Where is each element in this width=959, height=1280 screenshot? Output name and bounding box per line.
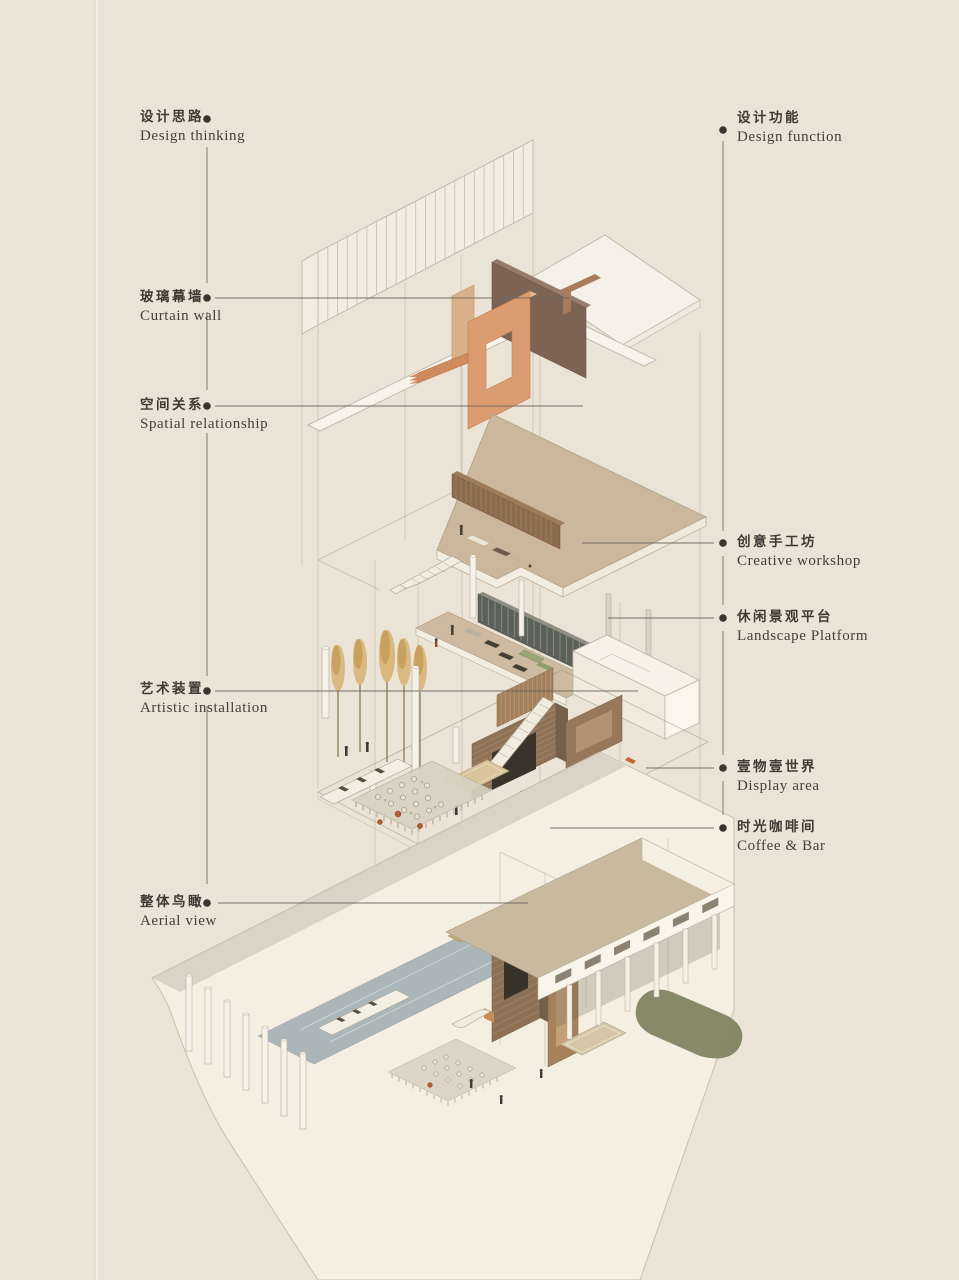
label-display-area-zh: 壹物壹世界 [737, 760, 820, 774]
label-landscape-platform-zh: 休闲景观平台 [737, 610, 868, 624]
label-design-function-zh: 设计功能 [737, 111, 842, 125]
label-aerial-view-zh: 整体鸟瞰 [140, 895, 217, 909]
orange-sculpture [409, 259, 601, 429]
exploded-axonometric-poster: 设计思路 Design thinking 玻璃幕墙 Curtain wall 空… [0, 0, 959, 1280]
label-creative-workshop-zh: 创意手工坊 [737, 535, 861, 549]
label-spatial-relationship: 空间关系 Spatial relationship [140, 398, 268, 432]
label-artistic-installation-zh: 艺术装置 [140, 682, 268, 696]
label-creative-workshop-en: Creative workshop [737, 554, 861, 569]
workshop-escalator [390, 556, 462, 594]
leader-dot [719, 824, 727, 832]
leader-dot [719, 539, 727, 547]
label-curtain-wall-en: Curtain wall [140, 309, 222, 324]
label-design-thinking-en: Design thinking [140, 129, 245, 144]
label-design-function: 设计功能 Design function [737, 111, 842, 145]
label-coffee-bar-zh: 时光咖啡间 [737, 820, 826, 834]
label-coffee-bar: 时光咖啡间 Coffee & Bar [737, 820, 826, 854]
leader-dot [719, 614, 727, 622]
label-design-thinking: 设计思路 Design thinking [140, 110, 245, 144]
label-landscape-platform-en: Landscape Platform [737, 629, 868, 644]
label-coffee-bar-en: Coffee & Bar [737, 839, 826, 854]
label-curtain-wall: 玻璃幕墙 Curtain wall [140, 290, 222, 324]
creative-workshop-layer [390, 414, 706, 597]
leader-dot [719, 126, 727, 134]
label-artistic-installation: 艺术装置 Artistic installation [140, 682, 268, 716]
leader-dot [719, 764, 727, 772]
label-display-area-en: Display area [737, 779, 820, 794]
label-curtain-wall-zh: 玻璃幕墙 [140, 290, 222, 304]
label-spatial-relationship-en: Spatial relationship [140, 417, 268, 432]
label-spatial-relationship-zh: 空间关系 [140, 398, 268, 412]
label-aerial-view-en: Aerial view [140, 914, 217, 929]
label-artistic-installation-en: Artistic installation [140, 701, 268, 716]
label-aerial-view: 整体鸟瞰 Aerial view [140, 895, 217, 929]
label-creative-workshop: 创意手工坊 Creative workshop [737, 535, 861, 569]
label-landscape-platform: 休闲景观平台 Landscape Platform [737, 610, 868, 644]
label-display-area: 壹物壹世界 Display area [737, 760, 820, 794]
label-design-function-en: Design function [737, 130, 842, 145]
aerial-view-layer [152, 752, 742, 1280]
label-design-thinking-zh: 设计思路 [140, 110, 245, 124]
